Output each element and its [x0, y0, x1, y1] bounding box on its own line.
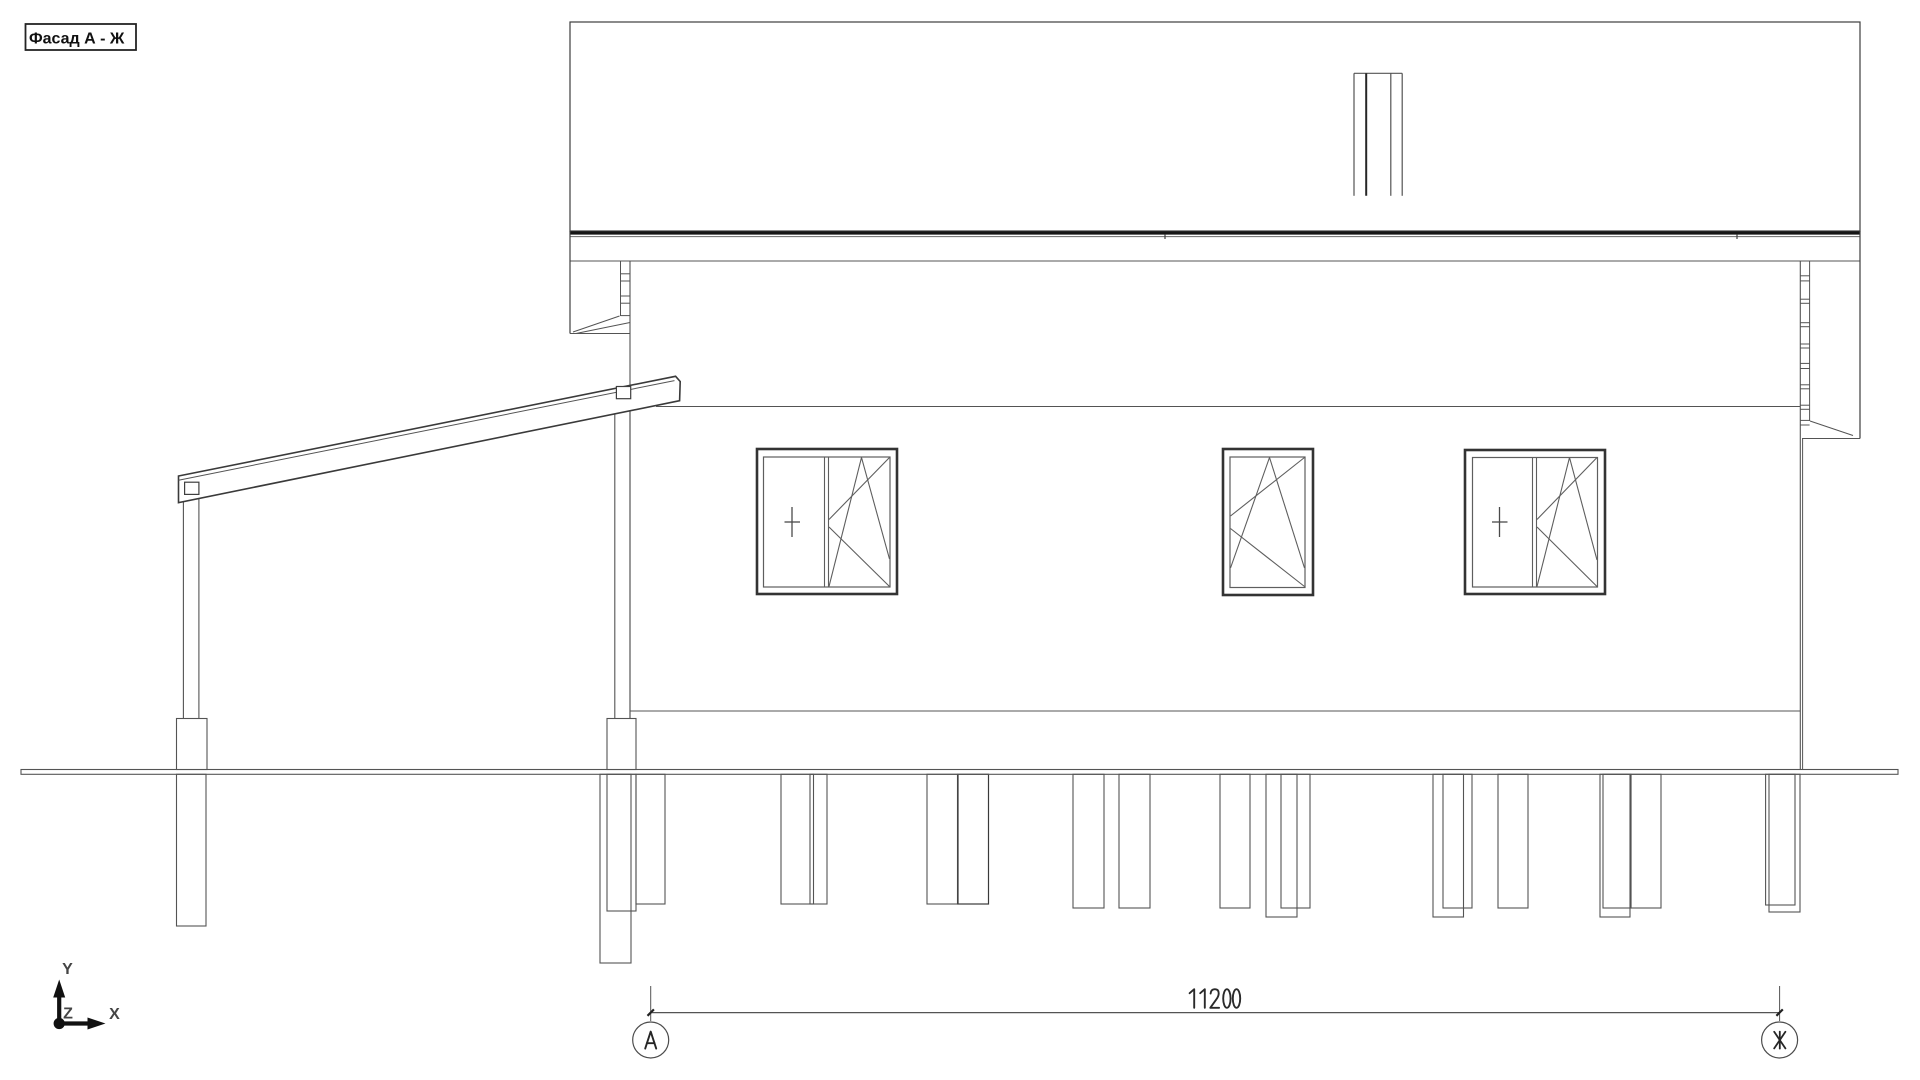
svg-text:Y: Y	[62, 961, 73, 978]
svg-text:X: X	[109, 1006, 120, 1023]
svg-text:Z: Z	[63, 1006, 73, 1023]
svg-text:Фасад А - Ж: Фасад А - Ж	[29, 31, 125, 48]
